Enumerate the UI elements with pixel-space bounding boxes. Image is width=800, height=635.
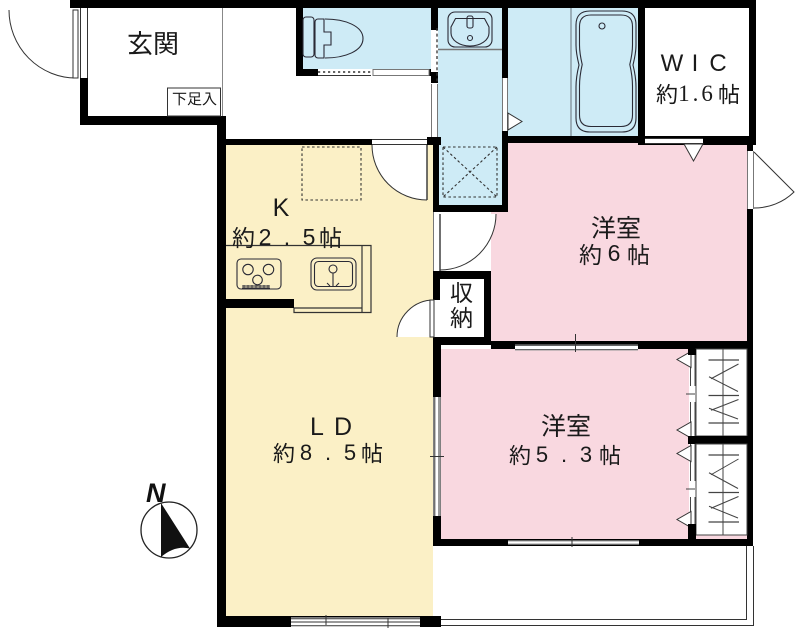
svg-text:W: W (661, 50, 684, 77)
svg-text:2: 2 (259, 224, 272, 250)
svg-text:N: N (146, 478, 166, 508)
svg-text:5: 5 (303, 224, 316, 250)
svg-text:.: . (284, 224, 290, 250)
svg-text:3: 3 (580, 442, 592, 467)
svg-text:6: 6 (608, 240, 621, 266)
svg-text:.: . (325, 440, 331, 465)
svg-text:.: . (561, 442, 567, 467)
svg-text:I: I (692, 50, 699, 77)
svg-text:C: C (709, 50, 726, 77)
svg-text:K: K (273, 194, 290, 222)
svg-text:L: L (310, 413, 324, 441)
svg-text:5: 5 (536, 442, 548, 467)
svg-text:D: D (334, 413, 352, 441)
svg-text:8: 8 (300, 440, 312, 465)
svg-text:5: 5 (344, 440, 356, 465)
svg-text:1.6: 1.6 (678, 81, 716, 106)
